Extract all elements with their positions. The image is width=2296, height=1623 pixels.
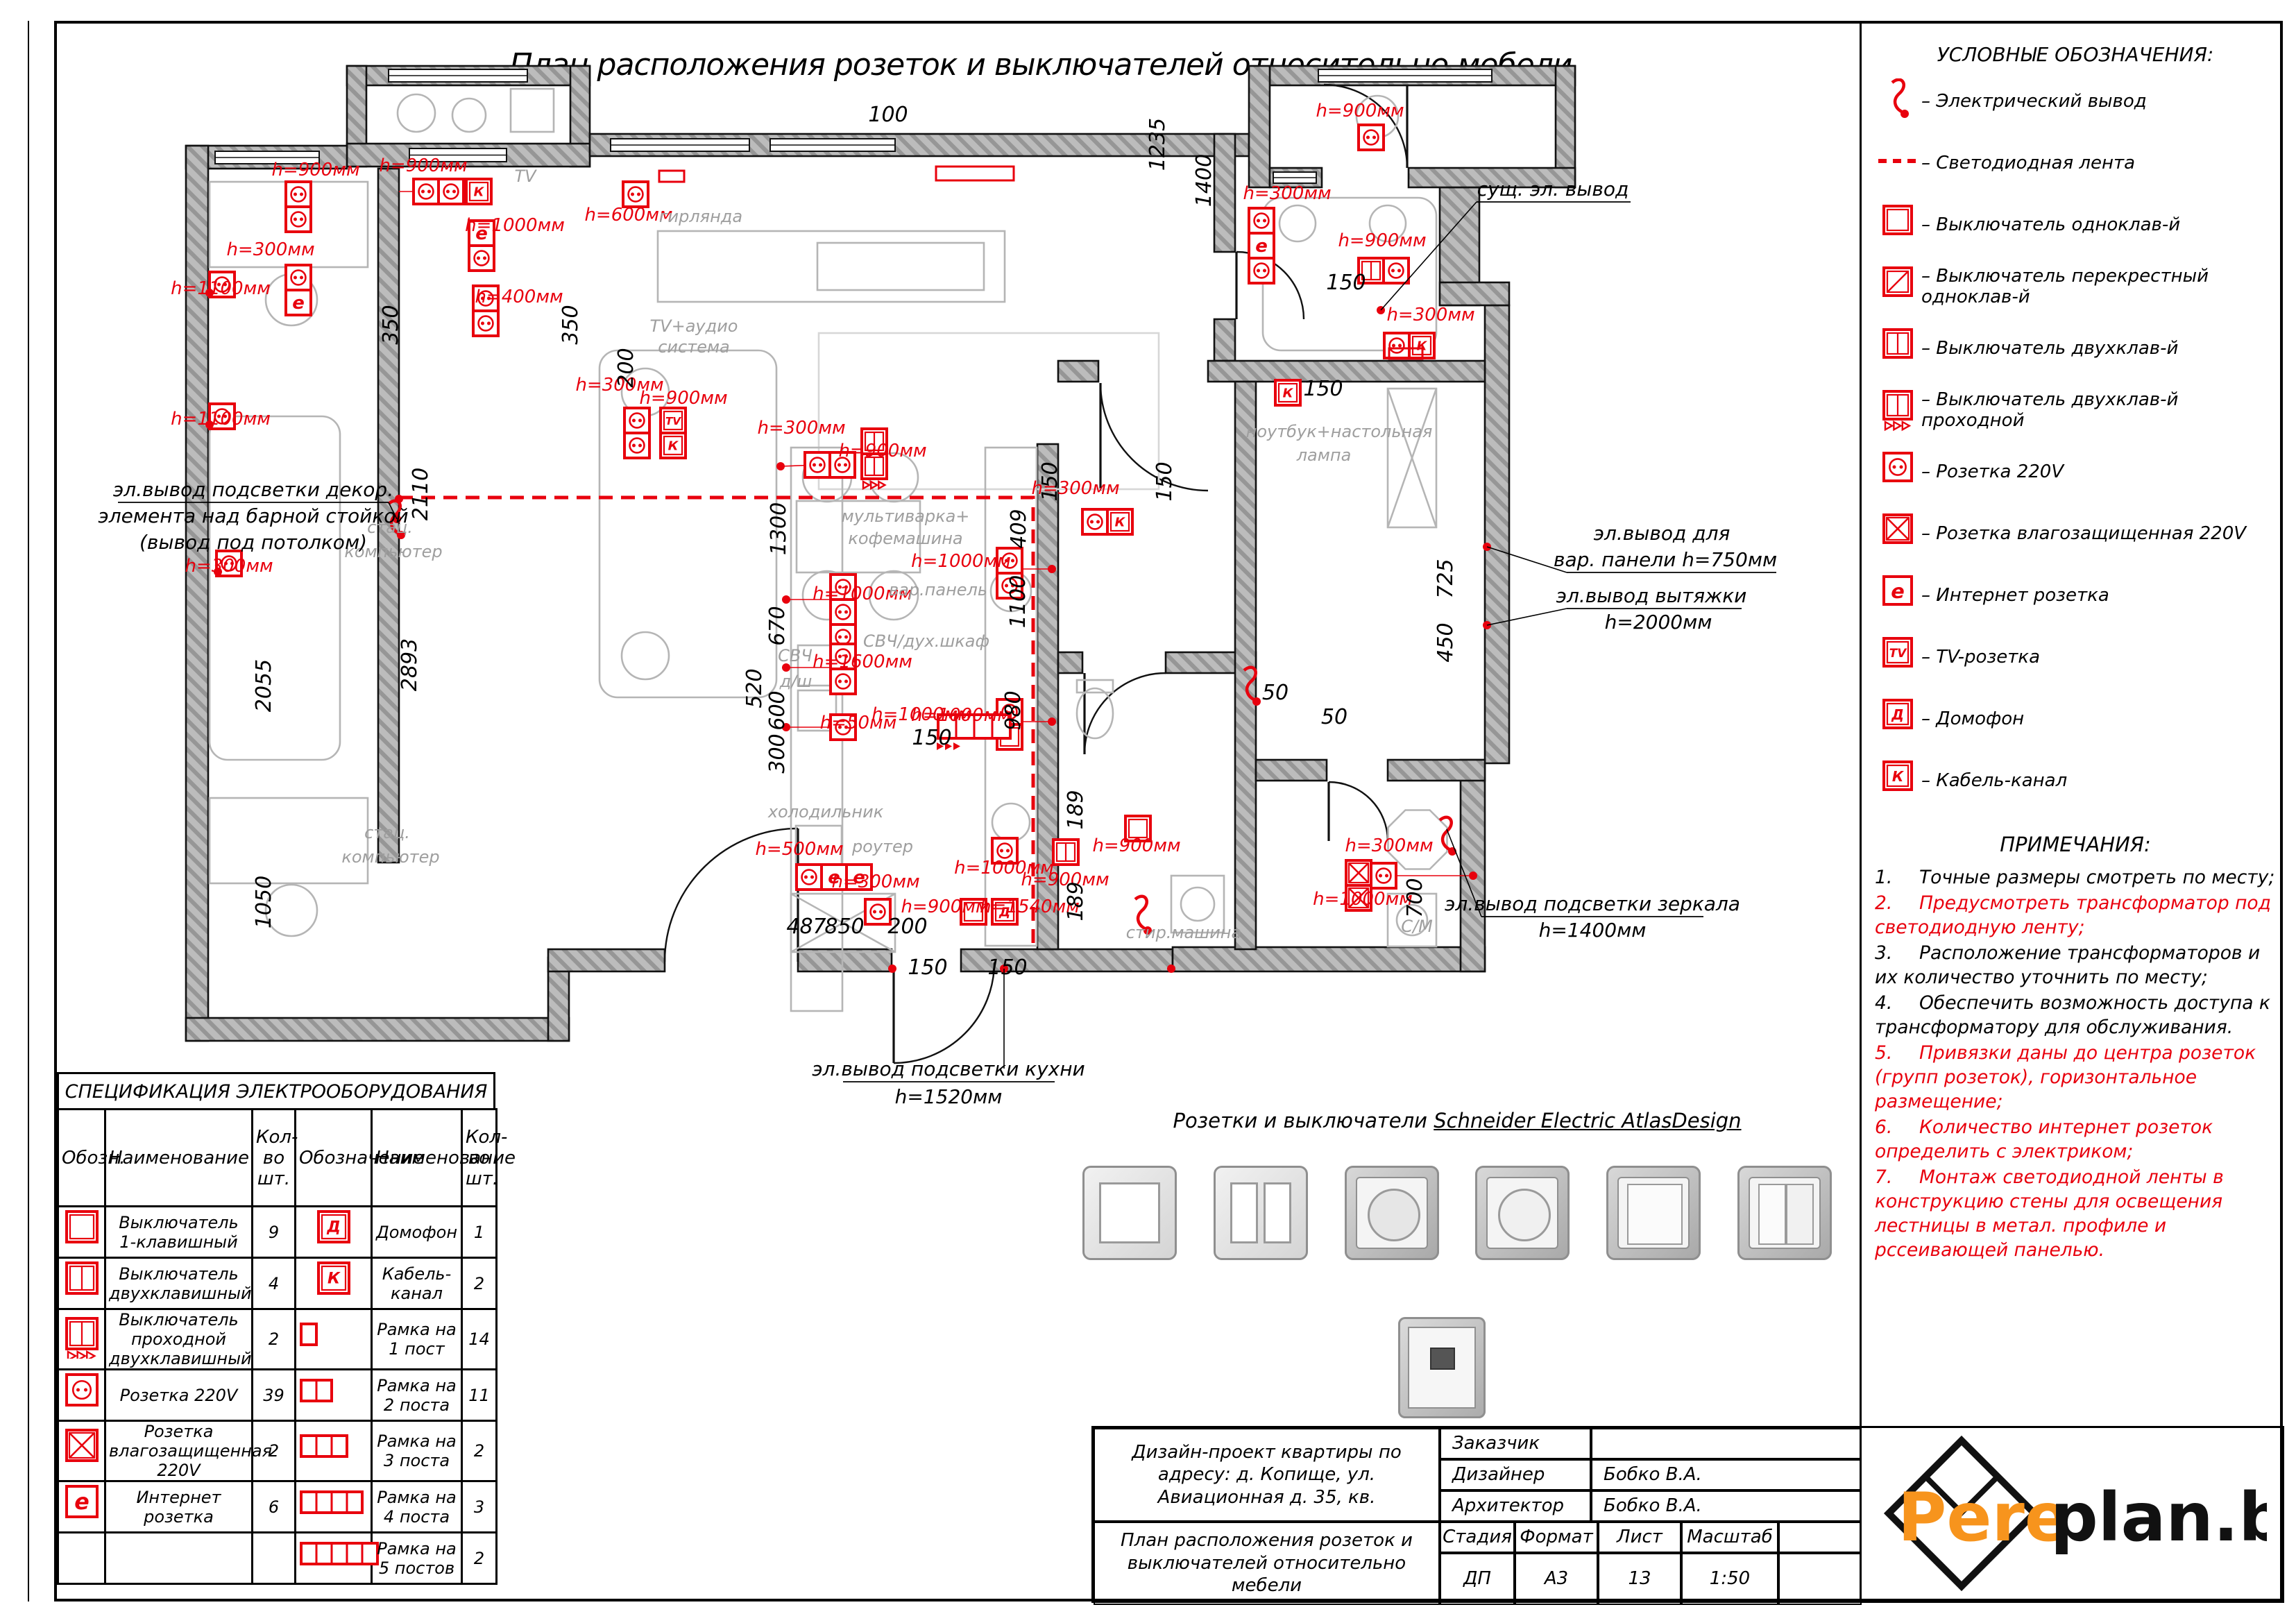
spec-name: Кабель-канал	[372, 1258, 462, 1309]
sheet-title: План расположения розеток и выключателей…	[1094, 1522, 1440, 1605]
spec-qty: 6	[253, 1481, 296, 1533]
legend-item-switch-1key: – Выключатель одноклав-й	[1877, 202, 2274, 249]
spec-row-1: Выключатель 1-клавишный 9 Д Домофон 1	[58, 1207, 497, 1258]
spec-name: Интернет розетка	[105, 1481, 253, 1533]
role-label-3: Архитектор	[1440, 1490, 1591, 1522]
spec-name: Рамка на 4 поста	[372, 1481, 462, 1533]
spec-symbol	[296, 1309, 372, 1370]
project-address: Дизайн-проект квартиры по адресу: д. Коп…	[1094, 1428, 1440, 1522]
legend-item-label: – Интернет розетка	[1921, 586, 2109, 606]
legend-item-led-strip: – Светодиодная лента	[1877, 140, 2274, 187]
legend-item-socket-waterproof: – Розетка влагозащищенная 220V	[1877, 511, 2274, 558]
spec-name: Розетка влагозащищенная 220V	[105, 1421, 253, 1481]
cable-channel-icon: К	[1877, 758, 1921, 805]
legend-item-label: – Домофон	[1921, 709, 2024, 730]
spec-name: Рамка на 2 поста	[372, 1370, 462, 1421]
products-panel: Розетки и выключатели Schneider Electric…	[1082, 1109, 1832, 1260]
spec-name: Рамка на 3 поста	[372, 1421, 462, 1481]
products-title-brand: Schneider Electric AtlasDesign	[1434, 1109, 1741, 1132]
meta-value-4: 1:50	[1681, 1553, 1778, 1605]
spec-symbol	[58, 1207, 105, 1258]
spec-symbol	[296, 1533, 372, 1584]
spec-qty: 14	[462, 1309, 497, 1370]
logo-text-accent: Pere	[1898, 1479, 2070, 1556]
spec-header: Наименование	[105, 1110, 253, 1207]
meta-header-4: Масштаб	[1681, 1522, 1778, 1553]
legend-item-label: – Светодиодная лента	[1921, 153, 2135, 174]
legend-item-label: – Выключатель двухклав-й	[1921, 339, 2178, 359]
spec-symbol: e	[58, 1481, 105, 1533]
spec-symbol	[58, 1370, 105, 1421]
spec-name: Рамка на 1 пост	[372, 1309, 462, 1370]
spec-name: Розетка 220V	[105, 1370, 253, 1421]
spec-name: Рамка на 5 постов	[372, 1533, 462, 1584]
legend-item-label: – Кабель-канал	[1921, 771, 2067, 792]
legend-item-switch-2key-pass: – Выключатель двухклав-й проходной	[1877, 387, 2274, 434]
spec-qty: 2	[462, 1533, 497, 1584]
product-socket-ip44	[1475, 1166, 1570, 1260]
product-switch-1-key	[1606, 1166, 1701, 1260]
note-item-5: 5.Привязки даны до центра розеток (групп…	[1875, 1042, 2276, 1114]
spec-table: СПЕЦИФИКАЦИЯ ЭЛЕКТРООБОРУДОВАНИЯ Обозн.Н…	[57, 1072, 495, 1585]
spec-qty: 9	[253, 1207, 296, 1258]
svg-text:К: К	[328, 1270, 341, 1287]
tv-socket-icon: TV	[1877, 634, 1921, 681]
spec-symbol	[58, 1258, 105, 1309]
legend-item-label: – Розетка 220V	[1921, 462, 2064, 483]
products-title: Розетки и выключатели Schneider Electric…	[1082, 1109, 1832, 1132]
legend-item-electric-output: – Электрический вывод	[1877, 78, 2274, 126]
spec-qty: 4	[253, 1258, 296, 1309]
intercom-icon: Д	[1877, 696, 1921, 743]
led-strip-icon	[1877, 140, 1921, 187]
spec-header: Наименование	[372, 1110, 462, 1207]
spec-qty: 2	[462, 1421, 497, 1481]
spec-qty	[253, 1533, 296, 1584]
note-item-3: 3.Расположение трансформаторов и их коли…	[1875, 942, 2276, 990]
meta-value-empty	[1778, 1553, 1862, 1605]
legend-title: УСЛОВНЫЕ ОБОЗНАЧЕНИЯ:	[1877, 43, 2274, 66]
note-item-6: 6.Количество интернет розеток определить…	[1875, 1116, 2276, 1164]
spec-grid: Обозн.НаименованиеКол-во шт.ОбозначениеН…	[57, 1108, 498, 1585]
spec-qty: 2	[462, 1258, 497, 1309]
legend-item-label: – Выключатель двухклав-й проходной	[1921, 390, 2274, 432]
page-title: План расположения розеток и выключателей…	[444, 47, 1638, 83]
spec-name: Выключатель проходной двухклавишный	[105, 1309, 253, 1370]
legend-panel: УСЛОВНЫЕ ОБОЗНАЧЕНИЯ: – Электрический вы…	[1877, 43, 2274, 819]
role-value-1	[1591, 1428, 1862, 1459]
spec-qty: 2	[253, 1309, 296, 1370]
switch-1key-icon	[1877, 202, 1921, 249]
spec-symbol	[58, 1533, 105, 1584]
notes-title: ПРИМЕЧАНИЯ:	[1875, 833, 2276, 856]
frame-outer-line	[28, 21, 29, 1601]
svg-text:К: К	[1892, 768, 1905, 785]
spec-symbol: Д	[296, 1207, 372, 1258]
note-item-4: 4.Обеспечить возможность доступа к транс…	[1875, 992, 2276, 1040]
legend-item-label: – Розетка влагозащищенная 220V	[1921, 524, 2246, 545]
spec-symbol	[296, 1421, 372, 1481]
note-item-7: 7.Монтаж светодиодной ленты в конструкци…	[1875, 1166, 2276, 1263]
spec-row-3: Выключатель проходной двухклавишный 2 Ра…	[58, 1309, 497, 1370]
legend-item-intercom: Д – Домофон	[1877, 696, 2274, 743]
spec-name: Выключатель двухклавишный	[105, 1258, 253, 1309]
spec-title: СПЕЦИФИКАЦИЯ ЭЛЕКТРООБОРУДОВАНИЯ	[57, 1072, 495, 1108]
spec-symbol	[296, 1481, 372, 1533]
switch-2key-icon	[1877, 325, 1921, 373]
notes-panel: ПРИМЕЧАНИЯ: 1.Точные размеры смотреть по…	[1875, 833, 2276, 1264]
legend-item-tv-socket: TV – TV-розетка	[1877, 634, 2274, 681]
svg-text:e: e	[74, 1490, 89, 1515]
spec-symbol	[58, 1421, 105, 1481]
spec-name	[105, 1533, 253, 1584]
meta-header-empty	[1778, 1522, 1862, 1553]
meta-header-1: Стадия	[1440, 1522, 1515, 1553]
legend-column-divider	[1860, 21, 1862, 1601]
switch-2key-pass-icon	[1877, 387, 1921, 434]
product-frame-2-post	[1214, 1166, 1308, 1260]
spec-row-2: Выключатель двухклавишный 4 К Кабель-кан…	[58, 1258, 497, 1309]
meta-value-2: А3	[1515, 1553, 1598, 1605]
role-value-3: Бобко В.А.	[1591, 1490, 1862, 1522]
role-label-1: Заказчик	[1440, 1428, 1591, 1459]
svg-text:TV: TV	[1889, 646, 1907, 660]
note-item-1: 1.Точные размеры смотреть по месту;	[1875, 866, 2276, 890]
spec-symbol: К	[296, 1258, 372, 1309]
note-item-2: 2.Предусмотреть трансформатор под светод…	[1875, 892, 2276, 940]
spec-row-5: Розетка влагозащищенная 220V 2 Рамка на …	[58, 1421, 497, 1481]
svg-text:e: e	[1891, 579, 1905, 603]
product-switch-2-key	[1737, 1166, 1832, 1260]
socket-220v-icon	[1877, 449, 1921, 496]
spec-row-7: Рамка на 5 постов 2	[58, 1533, 497, 1584]
legend-item-cable-channel: К – Кабель-канал	[1877, 758, 2274, 805]
legend-item-socket-220v: – Розетка 220V	[1877, 449, 2274, 496]
socket-waterproof-icon	[1877, 511, 1921, 558]
svg-text:Д: Д	[1891, 706, 1904, 723]
meta-value-3: 13	[1598, 1553, 1681, 1605]
legend-item-label: – Электрический вывод	[1921, 92, 2147, 112]
internet-socket-icon: e	[1877, 572, 1921, 620]
spec-header: Обозн.	[58, 1110, 105, 1207]
spec-row-4: Розетка 220V 39 Рамка на 2 поста 11	[58, 1370, 497, 1421]
drawing-sheet: План расположения розеток и выключателей…	[0, 0, 2296, 1623]
meta-value-1: ДП	[1440, 1553, 1515, 1605]
product-socket-220v	[1345, 1166, 1439, 1260]
legend-item-switch-cross: – Выключатель перекрестный одноклав-й	[1877, 264, 2274, 311]
switch-cross-icon	[1877, 264, 1921, 311]
role-value-2: Бобко В.А.	[1591, 1459, 1862, 1490]
legend-item-switch-2key: – Выключатель двухклав-й	[1877, 325, 2274, 373]
meta-header-3: Лист	[1598, 1522, 1681, 1553]
legend-item-label: – Выключатель перекрестный одноклав-й	[1921, 266, 2274, 308]
spec-name: Домофон	[372, 1207, 462, 1258]
spec-qty: 1	[462, 1207, 497, 1258]
role-label-2: Дизайнер	[1440, 1459, 1591, 1490]
spec-qty: 39	[253, 1370, 296, 1421]
electric-output-icon	[1877, 78, 1921, 126]
legend-item-label: – TV-розетка	[1921, 647, 2040, 668]
products-title-plain: Розетки и выключатели	[1173, 1109, 1427, 1132]
spec-symbol	[296, 1370, 372, 1421]
spec-name: Выключатель 1-клавишный	[105, 1207, 253, 1258]
product-internet-socket	[1398, 1317, 1486, 1418]
spec-symbol	[58, 1309, 105, 1370]
spec-header: Кол-во шт.	[253, 1110, 296, 1207]
spec-header: Обозначение	[296, 1110, 372, 1207]
logo-text-dark: plan.by	[2050, 1479, 2267, 1556]
legend-item-label: – Выключатель одноклав-й	[1921, 215, 2180, 236]
brand-logo: Pere plan.by	[1865, 1431, 2280, 1599]
spec-qty: 3	[462, 1481, 497, 1533]
legend-item-internet-socket: e – Интернет розетка	[1877, 572, 2274, 620]
spec-qty: 11	[462, 1370, 497, 1421]
meta-header-2: Формат	[1515, 1522, 1598, 1553]
spec-row-6: e Интернет розетка 6 Рамка на 4 поста 3	[58, 1481, 497, 1533]
product-frame-1-post	[1082, 1166, 1177, 1260]
svg-text:Д: Д	[326, 1218, 341, 1236]
